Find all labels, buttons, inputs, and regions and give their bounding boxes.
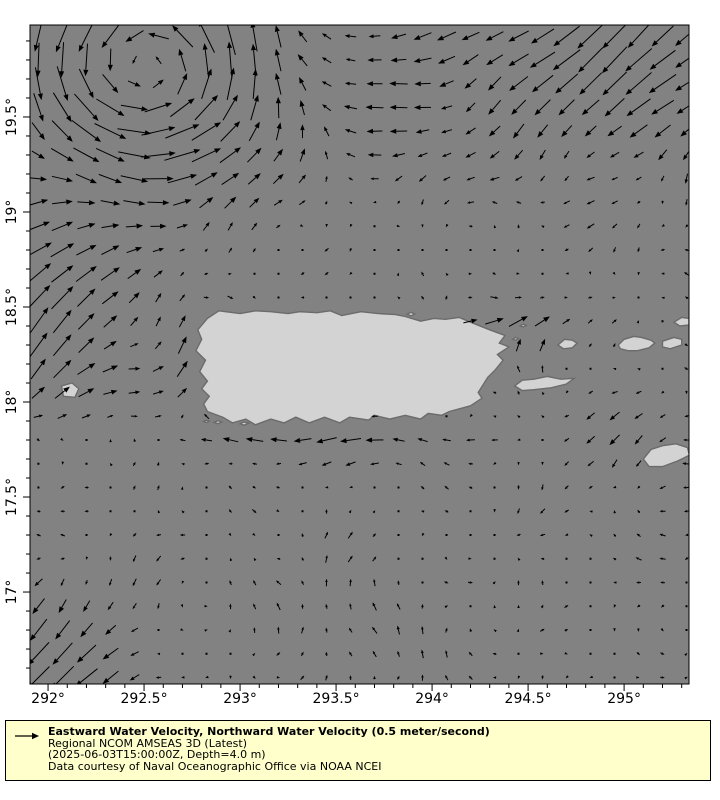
velocity-map: 292°292.5°293°293.5°294°294.5°295°17°17.… [0,0,720,712]
island-islet-south-1 [214,421,222,424]
svg-text:18°: 18° [4,390,20,415]
svg-text:19°: 19° [4,200,20,225]
quiver-figure: 292°292.5°293°293.5°294°294.5°295°17°17.… [0,0,720,800]
svg-text:294°: 294° [415,691,449,707]
legend-text-block: Eastward Water Velocity, Northward Water… [48,721,490,773]
svg-text:19.5°: 19.5° [4,98,20,136]
svg-text:292.5°: 292.5° [121,691,168,707]
svg-text:17°: 17° [4,580,20,605]
island-puerto-rico [196,311,509,425]
svg-text:293°: 293° [223,691,257,707]
svg-text:18.5°: 18.5° [4,288,20,326]
legend-box: Eastward Water Velocity, Northward Water… [5,720,711,781]
svg-text:295°: 295° [607,691,641,707]
svg-text:292°: 292° [31,691,65,707]
svg-text:17.5°: 17.5° [4,478,20,516]
island-islet-south-2 [204,420,210,422]
legend-title: Eastward Water Velocity, Northward Water… [48,726,490,738]
reference-arrow-icon [11,730,45,742]
svg-text:293.5°: 293.5° [313,691,360,707]
svg-text:294.5°: 294.5° [505,691,552,707]
legend-credit-line: Data courtesy of Naval Oceanographic Off… [48,761,490,773]
